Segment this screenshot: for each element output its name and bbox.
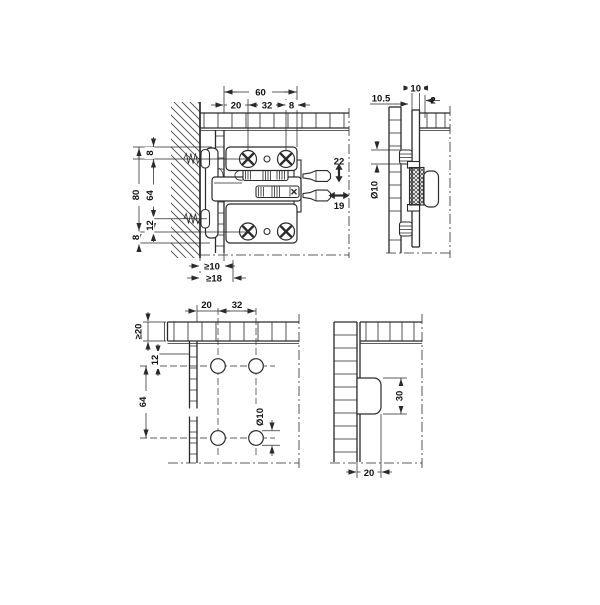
- svg-text:30: 30: [394, 391, 405, 402]
- svg-text:80: 80: [131, 190, 142, 201]
- svg-text:12: 12: [145, 220, 156, 231]
- wall-hatch: [171, 102, 200, 258]
- dim-spacing-64: 64: [138, 391, 149, 413]
- svg-text:10: 10: [410, 84, 421, 95]
- dim-hole-spacing-32: 32: [229, 300, 246, 311]
- drill-hole: [211, 359, 226, 374]
- drill-hole: [249, 431, 264, 446]
- svg-text:20: 20: [231, 100, 242, 111]
- view-vertical-section: 10.5 10 2 Ø10: [368, 83, 450, 258]
- svg-text:64: 64: [138, 396, 149, 407]
- dim-hole-diameter: Ø10: [255, 404, 266, 430]
- dim-clearance-10: ≥10: [199, 261, 225, 272]
- cabinet-top-panel: [200, 113, 349, 131]
- svg-text:32: 32: [262, 100, 273, 111]
- dim-panel-thickness: 10: [408, 83, 425, 95]
- svg-text:≥18: ≥18: [206, 273, 222, 284]
- svg-text:8: 8: [289, 100, 294, 111]
- dim-offset-12: 12: [150, 351, 161, 369]
- dim-depth-20: 20: [361, 468, 378, 479]
- top-panel-section: [420, 113, 451, 131]
- drill-hole: [211, 431, 226, 446]
- hanger-bracket-bottom-plate: [226, 204, 297, 243]
- drill-hole: [249, 359, 264, 374]
- svg-text:20: 20: [364, 468, 375, 479]
- hanger-mounting-drawing: 60 20 32 8 80 8 64 12 8 ≥10 ≥18 22 19: [0, 0, 600, 600]
- dim-width-8: 8: [286, 100, 298, 111]
- technical-drawing-page: 60 20 32 8 80 8 64 12 8 ≥10 ≥18 22 19: [0, 0, 600, 600]
- dim-clearance-18: ≥18: [199, 273, 229, 284]
- dim-width-20: 20: [227, 100, 245, 111]
- top-panel-section: [360, 322, 422, 344]
- svg-text:10.5: 10.5: [372, 94, 391, 105]
- svg-text:32: 32: [232, 300, 243, 311]
- svg-text:20: 20: [201, 300, 212, 311]
- svg-text:60: 60: [255, 87, 266, 98]
- dim-gap: 2: [430, 96, 435, 107]
- svg-text:8: 8: [145, 150, 156, 155]
- screwdriver-icon: [303, 171, 331, 182]
- svg-text:64: 64: [145, 190, 156, 201]
- top-panel-front: [165, 322, 300, 344]
- dim-hole-diameter: Ø10: [369, 177, 380, 203]
- phillips-screw-icon: [240, 223, 257, 240]
- phillips-screw-icon: [278, 151, 295, 168]
- hanger-body-section: [408, 162, 425, 212]
- bracket-hole: [264, 229, 270, 235]
- hook-recess: [357, 378, 381, 414]
- dim-edge-min-20: ≥20: [133, 319, 144, 345]
- svg-text:12: 12: [150, 355, 161, 366]
- svg-text:≥10: ≥10: [204, 261, 220, 272]
- dim-hook-height-30: 30: [394, 386, 405, 406]
- dim-height-64: 64: [145, 185, 156, 207]
- horizontal-adjust-icon: [329, 192, 350, 199]
- dim-height-12: 12: [145, 217, 156, 235]
- back-rail-front: [190, 341, 198, 463]
- svg-text:≥20: ≥20: [133, 324, 144, 340]
- bracket-hole: [264, 156, 270, 162]
- screwdriver-icon: [303, 190, 331, 201]
- svg-text:Ø10: Ø10: [369, 181, 380, 199]
- hanger-hook-section: [424, 171, 439, 207]
- phillips-screw-icon: [278, 223, 295, 240]
- dim-height-8-bottom: 8: [131, 232, 142, 244]
- horizontal-adjustment-value: 19: [334, 201, 345, 212]
- view-panel-section: 30 20: [330, 314, 422, 479]
- svg-text:8: 8: [131, 235, 142, 240]
- dim-hole-offset-20: 20: [198, 300, 215, 311]
- dim-width-32: 32: [258, 100, 276, 111]
- view-side-section: 60 20 32 8 80 8 64 12 8 ≥10 ≥18 22 19: [131, 86, 350, 284]
- side-board-section: [334, 322, 357, 462]
- dowel-plug-bottom-icon: [400, 222, 413, 236]
- dim-total-height: 80: [131, 184, 142, 206]
- dim-total-width: 60: [249, 87, 272, 98]
- dim-height-8-top: 8: [145, 147, 156, 159]
- view-drilling-pattern: 20 32 ≥20 12 64 Ø10: [133, 300, 299, 472]
- dim-edge-distance: 10.5: [368, 93, 394, 105]
- svg-text:Ø10: Ø10: [255, 408, 266, 426]
- depth-adjustment-screw: [256, 186, 299, 198]
